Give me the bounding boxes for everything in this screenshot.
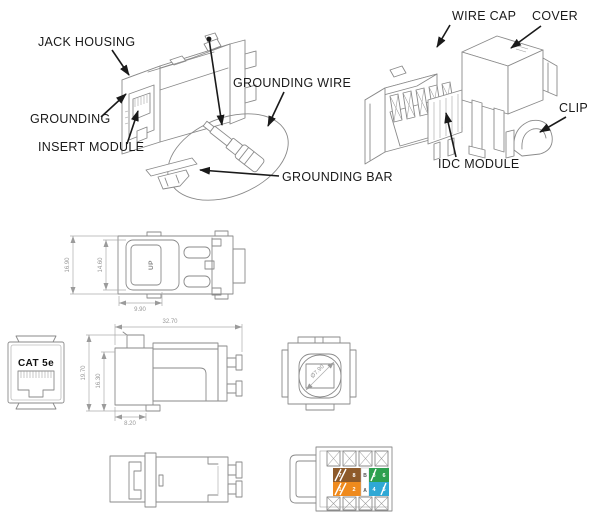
rear-view-drawing: Ø7.90: [282, 337, 356, 410]
pin-digit: 7: [338, 473, 341, 479]
grounding-bar-part: [146, 158, 197, 189]
dim-side-bezel: 8.20: [124, 421, 136, 427]
dim-rear-diameter: Ø7.90: [310, 364, 326, 380]
grounding-label: GROUNDING: [30, 112, 110, 126]
wiring-label-right-block: 3 6 4 5: [369, 468, 389, 496]
idc-module-label: IDC MODULE: [438, 157, 519, 171]
front-view-drawing: CAT 5e: [8, 336, 64, 409]
grounding-wire-part: [200, 117, 265, 173]
wire-cap-label: WIRE CAP: [452, 9, 516, 23]
dim-top-opening: 14.60: [98, 257, 104, 273]
top-view-drawing: UP 16.90 14.60 9.90: [65, 231, 245, 313]
dim-top-latch: 9.90: [134, 307, 146, 313]
idc-slots-top: [327, 451, 388, 466]
pin-digit: 8: [352, 473, 355, 479]
diagram-page: JACK HOUSING GROUNDING INSERT MODULE GRO…: [0, 0, 600, 522]
pin-digit: 3: [372, 473, 375, 479]
bottom-view-drawing: [110, 453, 242, 507]
idc-slots-bottom: [327, 497, 388, 510]
wiring-marker-column: B A: [361, 468, 369, 496]
wiring-a-marker: A: [363, 488, 367, 494]
pin-digit: 5: [382, 487, 385, 493]
assembled-jack-view: [122, 33, 256, 154]
wiring-b-marker: B: [363, 473, 367, 479]
technical-diagram: JACK HOUSING GROUNDING INSERT MODULE GRO…: [0, 0, 600, 522]
dim-top-width: 16.90: [65, 257, 71, 273]
wiring-view-drawing: 7 8 1 2 B A 3 6 4 5: [290, 447, 392, 511]
category-marking: CAT 5e: [18, 358, 54, 369]
jack-housing-label: JACK HOUSING: [38, 35, 135, 49]
clip-part: [506, 120, 552, 158]
grounding-wire-label: GROUNDING WIRE: [233, 76, 351, 90]
cover-label: COVER: [532, 9, 578, 23]
pin-digit: 2: [352, 487, 355, 493]
idc-module-part: [428, 90, 462, 160]
clip-label: CLIP: [559, 101, 588, 115]
dim-side-inner-height: 16.30: [96, 373, 102, 389]
grounding-bar-label: GROUNDING BAR: [282, 170, 393, 184]
dim-side-height: 19.70: [81, 365, 87, 381]
pin-digit: 1: [338, 487, 341, 493]
pin-digit: 6: [382, 473, 385, 479]
exploded-view: [365, 36, 557, 164]
side-view-drawing: 32.70 19.70 16.30 8.20: [81, 319, 242, 427]
wiring-label-left-block: 7 8 1 2: [333, 468, 361, 496]
dim-side-length: 32.70: [162, 319, 178, 325]
up-marking: UP: [148, 260, 155, 270]
